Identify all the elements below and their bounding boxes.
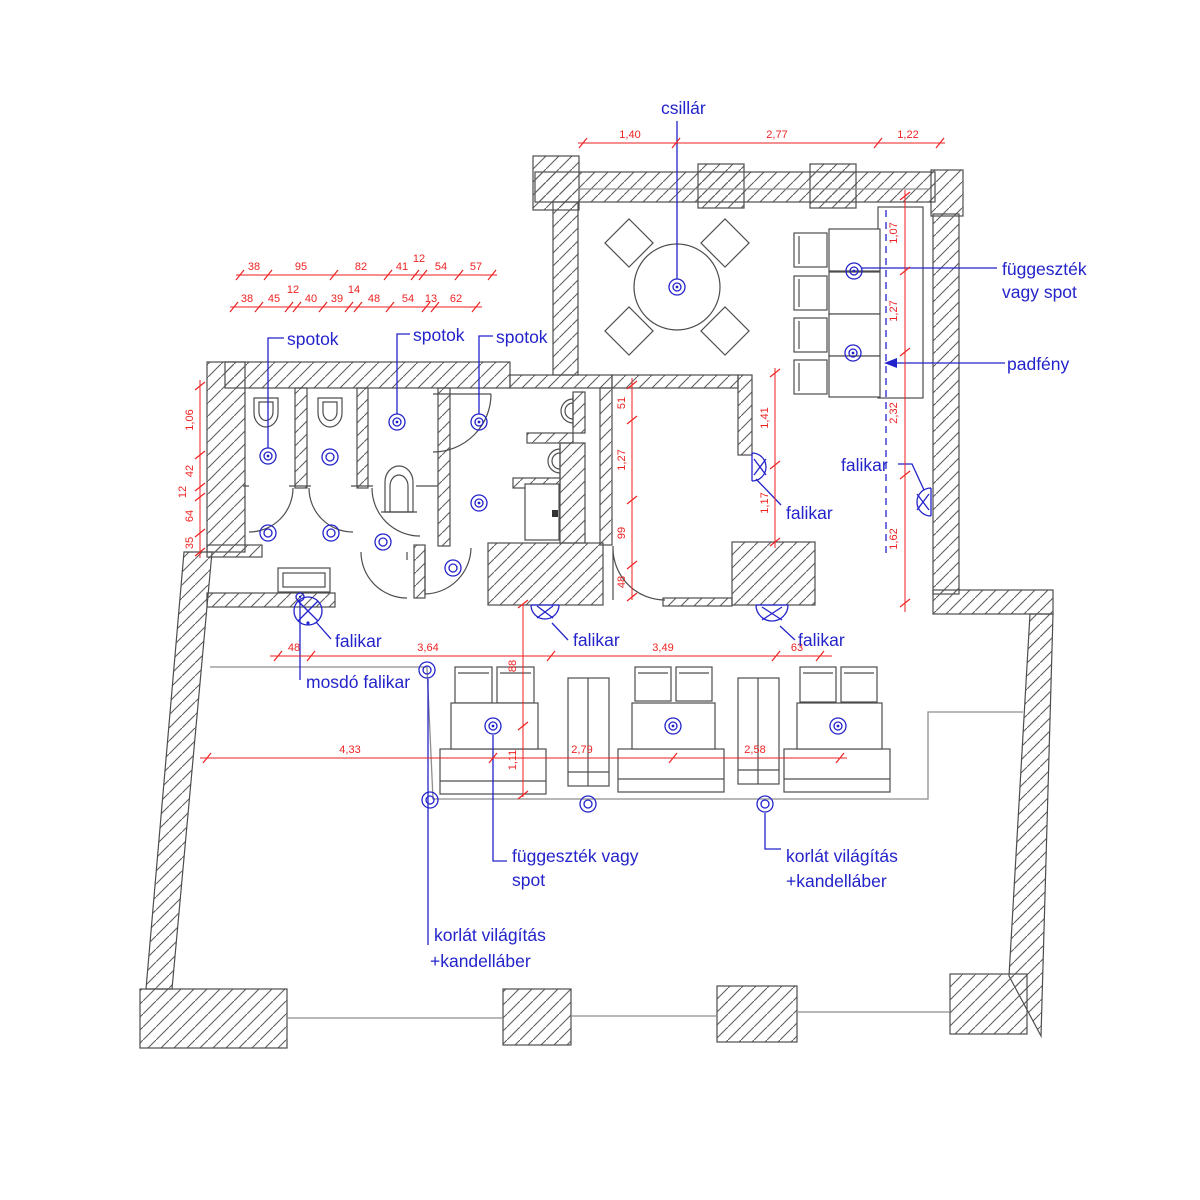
spot-symbol (445, 560, 461, 576)
lower-wall-block-1 (488, 543, 603, 605)
label-falikar-mid: falikar (786, 503, 833, 523)
right-slanted-wall (1009, 614, 1053, 1036)
hall-door-left (361, 552, 407, 598)
label-spotok-1: spotok (287, 329, 339, 349)
lower-thin-wall (663, 598, 732, 606)
spot-symbol (389, 414, 405, 430)
partition-1 (568, 678, 609, 786)
dim-text: 14 (348, 284, 360, 296)
toilet-2 (318, 398, 342, 427)
dim-text: 1,22 (897, 129, 918, 141)
label-fuggesztek-bottom-1: függeszték vagy (512, 846, 639, 866)
spot-symbol (260, 448, 276, 464)
stall-divider-2 (357, 388, 368, 488)
basin-wall-block (560, 443, 585, 543)
wall-lamp-mid-room (752, 453, 766, 481)
table (829, 272, 880, 314)
leader-falikar-b2 (552, 623, 568, 640)
label-falikar-b1: falikar (335, 631, 382, 651)
label-korlat-2-line2: +kandelláber (786, 871, 887, 891)
toilet-3 (381, 466, 417, 512)
door-post-wall (414, 545, 425, 598)
dim-text: 3,64 (417, 642, 438, 654)
dim-text: 48 (616, 576, 628, 588)
dim-text: 54 (402, 293, 414, 305)
dim-upper-row2: 38 45 12 40 39 14 48 54 13 62 (230, 284, 482, 312)
dim-text: 41 (396, 261, 408, 273)
bottom-left-block (140, 989, 287, 1048)
label-csillar: csillár (661, 98, 706, 118)
dim-text: 95 (295, 261, 307, 273)
right-bench-group (794, 207, 923, 398)
bench-platform (878, 207, 923, 398)
sink-counter (278, 568, 330, 592)
dim-text: 64 (184, 510, 196, 522)
spot-symbol (471, 495, 487, 511)
furniture-layer (440, 207, 923, 794)
closed-door-leaf (525, 484, 559, 540)
dim-text: 1,06 (184, 409, 196, 430)
left-slanted-wall (146, 552, 212, 989)
spot-symbol (322, 449, 338, 465)
dim-text: 4,33 (339, 744, 360, 756)
table (829, 229, 880, 271)
wall-lamp-bottom-2 (531, 605, 559, 619)
table (829, 356, 880, 397)
label-falikar-b3: falikar (798, 630, 845, 650)
spot-symbol (323, 525, 339, 541)
leader-falikar-b3 (780, 626, 795, 640)
dim-text: 48 (368, 293, 380, 305)
top-wall-pillar-2 (810, 164, 856, 208)
dim-text: 48 (288, 642, 300, 654)
dim-text: 99 (616, 527, 628, 539)
dim-text: 12 (287, 284, 299, 296)
dim-text: 38 (241, 293, 253, 305)
leader-falikar-b1 (316, 622, 331, 639)
dim-top: 1,40 2,77 1,22 (578, 129, 945, 148)
dim-text: 1,40 (619, 129, 640, 141)
dim-mid-room-vertical: 51 1,27 99 48 (616, 378, 637, 601)
dim-text: 82 (355, 261, 367, 273)
basin-shelf-1 (527, 433, 573, 443)
label-korlat-1-line2: +kandelláber (430, 951, 531, 971)
dim-text: 57 (470, 261, 482, 273)
lower-wall-block-2 (732, 542, 815, 605)
floor-plan-page: 1,40 2,77 1,22 38 95 82 41 12 54 57 38 4… (0, 0, 1200, 1200)
dim-text: 39 (331, 293, 343, 305)
dim-text: 38 (248, 261, 260, 273)
dim-text: 88 (507, 660, 519, 672)
label-mosdo-falikar: mosdó falikar (306, 672, 410, 692)
bathroom-step-wall (207, 545, 262, 557)
dim-text: 2,79 (571, 744, 592, 756)
platform (618, 749, 724, 792)
toilet-1 (254, 398, 278, 427)
dim-text: 1,11 (507, 750, 519, 771)
chair (635, 667, 671, 701)
table (451, 703, 538, 749)
dim-text: 12 (413, 253, 425, 265)
dim-upper-row1: 38 95 82 41 12 54 57 (236, 253, 497, 280)
mid-room-right-wall (738, 375, 752, 455)
left-wall (207, 362, 245, 552)
dim-text: 2,77 (766, 129, 787, 141)
floor-plan-drawing: 1,40 2,77 1,22 38 95 82 41 12 54 57 38 4… (0, 0, 1200, 1200)
dim-text: 62 (450, 293, 462, 305)
table (797, 703, 882, 749)
label-padfeny: padfény (1007, 354, 1070, 374)
label-falikar-b2: falikar (573, 630, 620, 650)
wall-lamp-right-wall (917, 488, 931, 516)
label-spotok-2: spotok (413, 325, 465, 345)
wall-lamp-bottom-3 (756, 605, 788, 621)
top-right-corner (931, 170, 963, 216)
dim-text: 54 (435, 261, 447, 273)
upper-room-left-wall (553, 202, 578, 375)
right-wall (933, 214, 959, 594)
dim-text: 1,41 (759, 407, 771, 428)
mid-room-door (613, 546, 665, 600)
dim-text: 2,32 (888, 402, 900, 423)
dim-text: 3,49 (652, 642, 673, 654)
chair (841, 667, 877, 702)
leader-spotok-1 (268, 338, 284, 448)
label-korlat-2-line1: korlát világítás (786, 846, 898, 866)
bottom-right-pillar (950, 974, 1027, 1034)
corridor-top-wall (510, 375, 612, 388)
label-falikar-right: falikar (841, 455, 888, 475)
dim-text: 1,27 (616, 449, 628, 470)
basin-wall-stub (573, 392, 585, 433)
label-spotok-3: spotok (496, 327, 548, 347)
dim-text: 1,62 (888, 528, 900, 549)
bottom-edge-line (287, 1012, 950, 1018)
chair (800, 667, 836, 702)
dim-text: 1,27 (888, 300, 900, 321)
dim-text: 13 (425, 293, 437, 305)
label-korlat-1-line1: korlát világítás (434, 925, 546, 945)
dim-text: 1,07 (888, 222, 900, 243)
top-wall-pillar-1 (698, 164, 744, 208)
dim-text: 35 (184, 537, 196, 549)
wc-room-right-wall (438, 388, 450, 546)
railing-light-symbol (422, 792, 438, 808)
bottom-pillar-1 (503, 989, 571, 1045)
label-fuggesztek-right-1: függeszték (1002, 259, 1087, 279)
dim-text: 42 (184, 465, 196, 477)
right-step-wall (933, 590, 1053, 614)
spot-symbols (260, 414, 487, 576)
dim-left-vertical: 1,06 42 12 64 35 (177, 380, 205, 558)
stall-divider-1 (295, 388, 307, 488)
dim-text: 12 (177, 486, 189, 498)
dim-text: 45 (268, 293, 280, 305)
mid-room-left-wall (600, 388, 612, 545)
platform (784, 749, 890, 792)
dim-text: 1,17 (759, 492, 771, 513)
bottom-pillar-2 (717, 986, 797, 1042)
washbasin-2 (548, 445, 560, 477)
hall-door-right (425, 548, 471, 595)
washbasin-1 (561, 395, 573, 427)
label-fuggesztek-right-2: vagy spot (1002, 282, 1077, 302)
dim-text: 51 (616, 397, 628, 409)
label-fuggesztek-bottom-2: spot (512, 870, 545, 890)
leader-korlat-2 (765, 813, 781, 849)
chair (676, 667, 712, 701)
spot-symbol (375, 534, 391, 550)
dim-text: 2,58 (744, 744, 765, 756)
dim-text: 40 (305, 293, 317, 305)
partition-2 (738, 678, 779, 784)
